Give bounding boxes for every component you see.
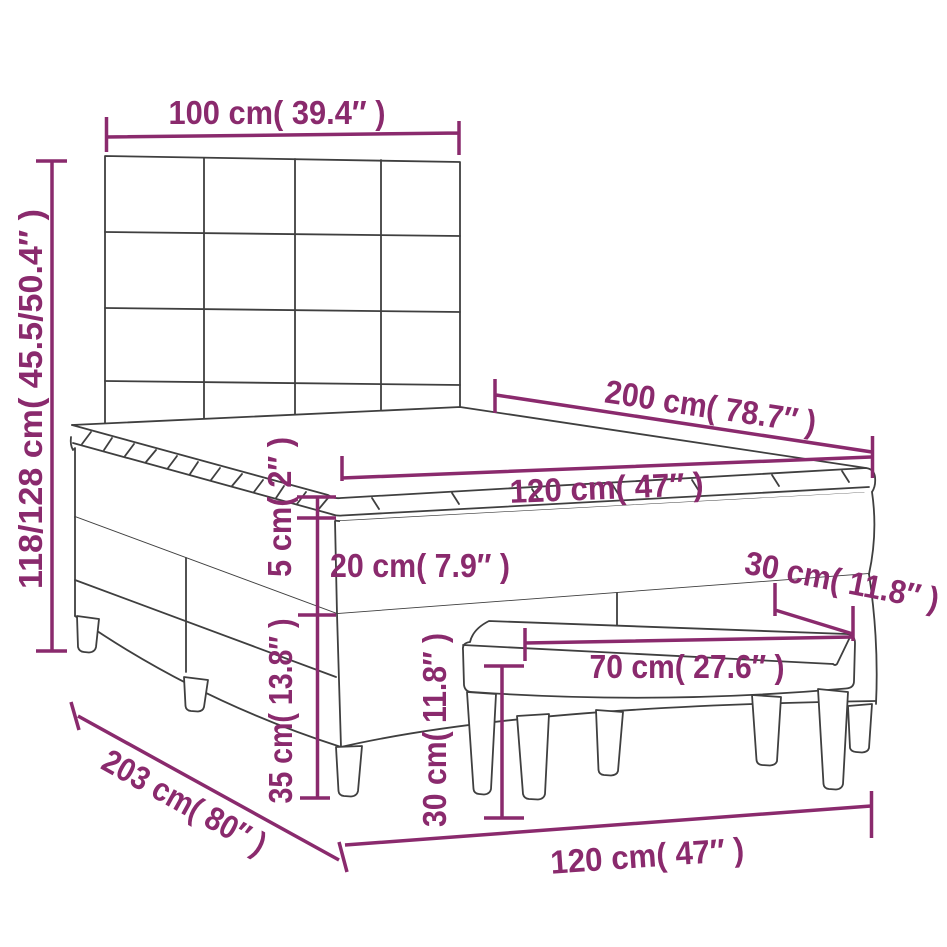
svg-text:70 cm( 27.6″ ): 70 cm( 27.6″ ) bbox=[590, 648, 785, 685]
svg-text:5 cm( 2″ ): 5 cm( 2″ ) bbox=[261, 437, 298, 577]
svg-text:30 cm( 11.8″ ): 30 cm( 11.8″ ) bbox=[416, 633, 453, 827]
svg-text:120 cm( 47″ ): 120 cm( 47″ ) bbox=[509, 465, 704, 510]
svg-text:118/128 cm( 45.5/50.4″ ): 118/128 cm( 45.5/50.4″ ) bbox=[12, 209, 49, 589]
svg-text:20 cm( 7.9″ ): 20 cm( 7.9″ ) bbox=[330, 547, 510, 584]
svg-text:100 cm( 39.4″ ): 100 cm( 39.4″ ) bbox=[169, 94, 386, 131]
svg-text:35 cm( 13.8″ ): 35 cm( 13.8″ ) bbox=[262, 619, 299, 804]
